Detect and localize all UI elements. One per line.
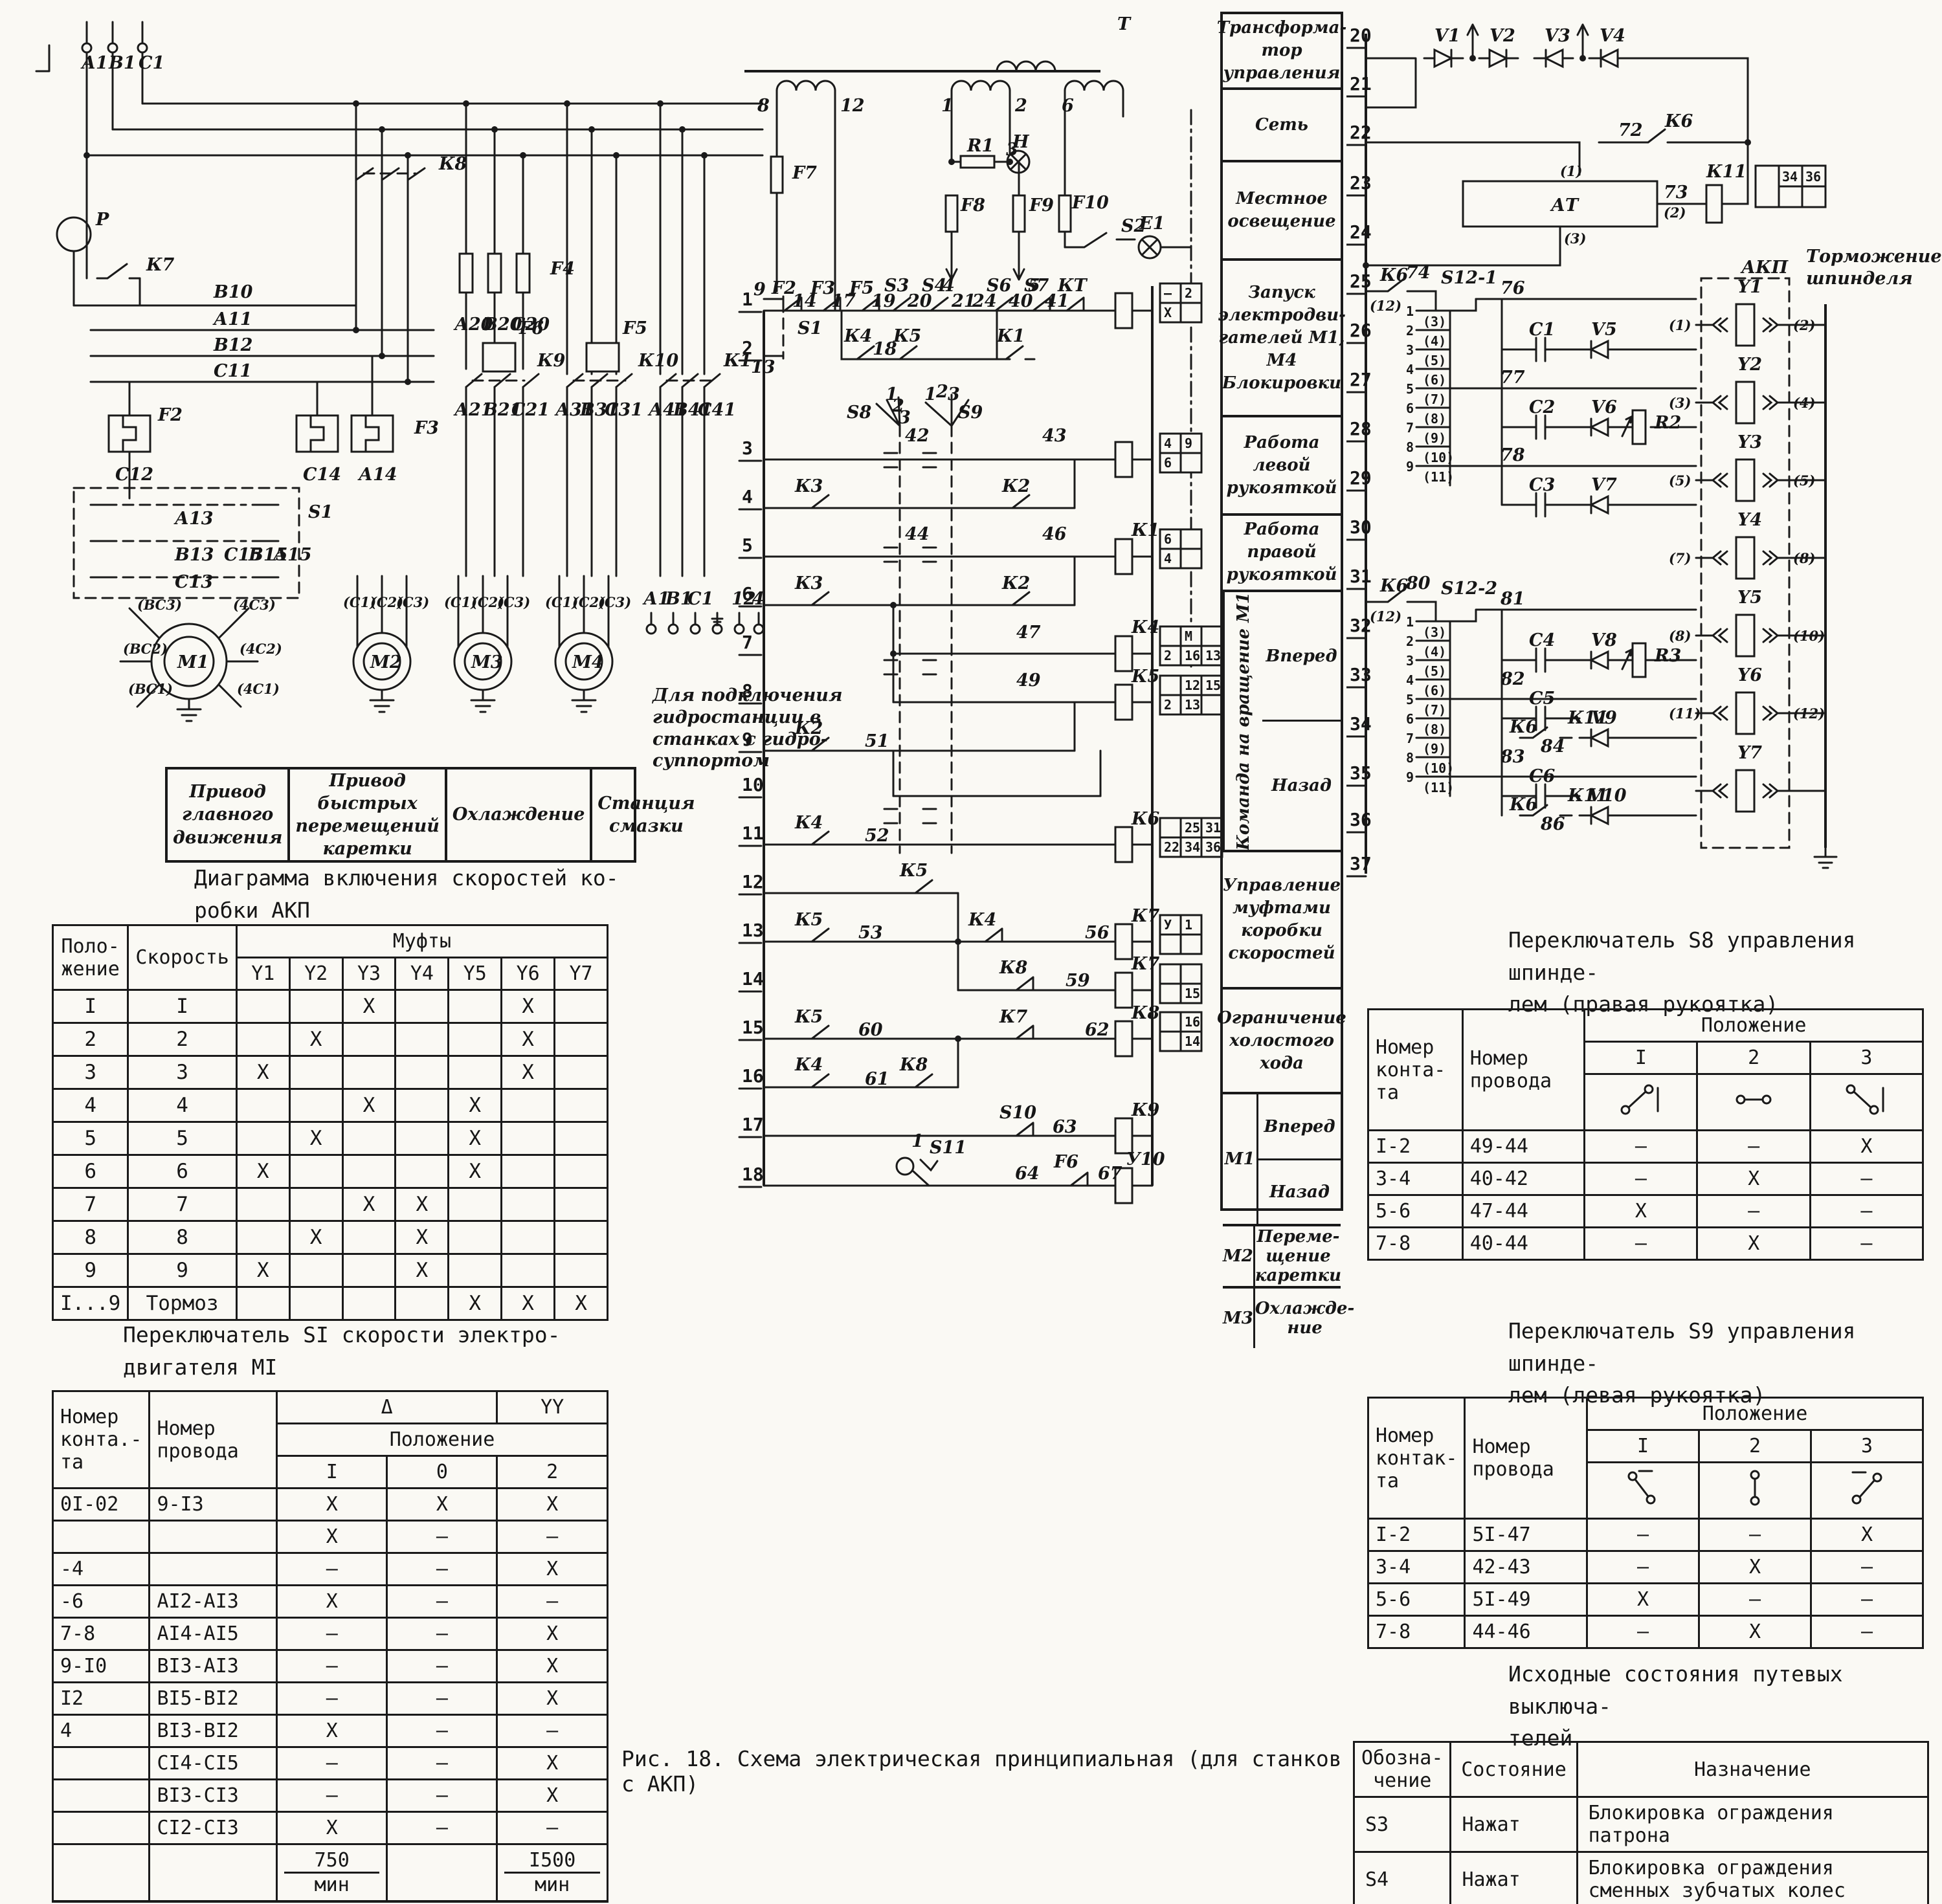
value-cell: – [497, 1521, 608, 1553]
limit-switch-row: S3НажатБлокировка ограждения патрона [1354, 1797, 1928, 1852]
s9-col-wire: Номер провода [1465, 1398, 1587, 1519]
schematic-label: 36 [1805, 169, 1821, 184]
clutch-control-schematic: 3436 1(3)2(4)3(5)4(6)5(7)6(8)7(9)8(10)9(… [1346, 6, 1929, 913]
s8-symbol-3 [1810, 1074, 1923, 1131]
fn-start-motors: Запуск электродви-гателей М1, М4 Блокиро… [1223, 261, 1341, 417]
clutch-mark-cell: X [342, 1089, 396, 1122]
schematic-label: V2 [1490, 26, 1515, 46]
position-cell: 5 [53, 1122, 128, 1155]
clutch-header: Y5 [449, 958, 502, 990]
schematic-label: К11 [1706, 162, 1747, 182]
schematic-label: 29 [1350, 467, 1372, 489]
schematic-label: Y5 [1737, 588, 1762, 608]
clutch-mark-cell [555, 1221, 608, 1254]
fn-right-handle: Работа правой рукояткой [1223, 516, 1341, 592]
schematic-label: 3 [742, 437, 753, 459]
wire-cell: 5I-49 [1465, 1584, 1587, 1616]
value-cell: X [497, 1650, 608, 1683]
value-cell: – [1811, 1551, 1923, 1584]
schematic-label: К5 [794, 1007, 823, 1027]
value-cell: X [497, 1683, 608, 1715]
speed-cell: 7 [128, 1188, 237, 1221]
schematic-label: К7 [999, 1007, 1028, 1027]
value-cell: – [387, 1586, 497, 1618]
schematic-label: 72 [1618, 120, 1643, 140]
clutch-mark-cell [449, 990, 502, 1023]
contact-cell: 7-8 [1368, 1616, 1465, 1648]
clutch-mark-cell [342, 1221, 396, 1254]
box-rapid-traverse: Привод быстрых перемещений каретки [290, 769, 447, 860]
clutch-mark-cell: X [555, 1287, 608, 1320]
s1-col-yy: YY [497, 1391, 608, 1424]
value-cell: X [497, 1780, 608, 1812]
clutch-mark-cell [236, 1089, 289, 1122]
value-cell: – [497, 1586, 608, 1618]
schematic-label: К6 [1509, 795, 1538, 815]
schematic-label: V1 [1434, 26, 1460, 46]
schematic-label: 52 [865, 826, 889, 846]
schematic-label: К6 [1509, 717, 1538, 737]
wire-cell: СI4-СI5 [150, 1747, 277, 1780]
schematic-label: С1 [687, 589, 713, 609]
speed-table-row: I...9ТормозXXX [53, 1287, 608, 1320]
schematic-label: F2 [157, 405, 183, 425]
wire-cell: 5I-47 [1465, 1519, 1587, 1551]
schematic-label: 5 [1406, 692, 1414, 707]
schematic-label: 13 [1185, 697, 1200, 713]
s9-switch-table: Номер контак- та Номер провода Положение… [1367, 1397, 1924, 1649]
clutch-mark-cell [449, 1023, 502, 1056]
schematic-label: 16 [1185, 648, 1200, 663]
value-cell: X [1699, 1551, 1811, 1584]
value-cell: – [387, 1747, 497, 1780]
sign-cell: S4 [1354, 1852, 1451, 1904]
speed-table-row: 66XX [53, 1155, 608, 1188]
schematic-label: К8 [899, 1055, 928, 1075]
position-cell: 9 [53, 1254, 128, 1287]
clutch-mark-cell [289, 1254, 342, 1287]
schematic-label: (10) [1423, 760, 1454, 776]
schematic-label: В1 [108, 53, 136, 73]
schematic-label: 9 [1185, 436, 1192, 451]
schematic-label: 34 [1782, 169, 1798, 184]
schematic-label: 76 [1501, 278, 1525, 298]
schematic-label: К7 [146, 255, 175, 275]
schematic-label: R2 [1654, 413, 1681, 433]
schematic-label: V5 [1591, 320, 1617, 340]
schematic-label: (10) [1793, 628, 1825, 644]
clutch-mark-cell: X [502, 990, 555, 1023]
schematic-label: 6 [1406, 401, 1414, 416]
value-cell: – [276, 1618, 386, 1650]
schematic-label: 4 [1406, 362, 1414, 377]
position-cell: 6 [53, 1155, 128, 1188]
value-cell: – [1699, 1519, 1811, 1551]
col-speed: Скорость [128, 925, 237, 990]
contact-cell [53, 1812, 150, 1844]
value-cell: X [497, 1553, 608, 1586]
clutch-mark-cell [289, 1155, 342, 1188]
value-cell: X [1587, 1584, 1699, 1616]
schematic-label: 37 [1350, 853, 1372, 874]
schematic-label: (1) [1669, 317, 1691, 333]
schematic-label: С1 [139, 53, 164, 73]
s8-pos-1: I [1585, 1042, 1697, 1074]
value-cell: X [276, 1586, 386, 1618]
schematic-label: С14 [303, 465, 341, 485]
schematic-label: 21 [1350, 73, 1372, 94]
position-cell: I...9 [53, 1287, 128, 1320]
power-circuit-schematic: А1В1С1РВ10К7К8F4А20В20С20А11В12С11F2С12С… [19, 6, 764, 764]
schematic-label: 5 [742, 535, 753, 556]
speed-cell: 6 [128, 1155, 237, 1188]
wire-cell: 40-44 [1462, 1228, 1585, 1260]
schematic-label: 22 [1164, 839, 1179, 855]
value-cell: – [1811, 1616, 1923, 1648]
s8-switch-table: Номер конта- та Номер провода Положение … [1367, 1008, 1924, 1261]
schematic-label: (4С2) [240, 641, 282, 657]
schematic-label: 34 [1185, 839, 1200, 855]
clutch-mark-cell [289, 1056, 342, 1089]
schematic-label: К1 [1131, 520, 1159, 540]
schematic-label: 2 [1406, 634, 1414, 649]
speed-table-row: 44XX [53, 1089, 608, 1122]
fn-idle-limit: Ограничение холостого хода [1223, 990, 1341, 1094]
schematic-label: 5 [1406, 381, 1414, 397]
speed-cell: 5 [128, 1122, 237, 1155]
speed-diagram-title: Диаграмма включения скоростей ко- робки … [194, 862, 660, 926]
schematic-label: 4 [1406, 672, 1414, 688]
wire-cell: ВI3-АI3 [150, 1650, 277, 1683]
schematic-label: F6 [519, 318, 544, 338]
schematic-label: (6) [1423, 372, 1446, 388]
clutch-mark-cell [555, 990, 608, 1023]
clutch-mark-cell [396, 1089, 449, 1122]
schematic-label: К4 [968, 910, 996, 930]
schematic-label: 8 [1406, 750, 1414, 766]
schematic-label: В12 [213, 335, 252, 355]
value-cell: – [1699, 1584, 1811, 1616]
clutch-header: Y1 [236, 958, 289, 990]
schematic-label: К5 [893, 326, 921, 346]
schematic-label: F10 [1071, 193, 1109, 213]
speed-cell: 4 [128, 1089, 237, 1122]
value-cell: – [387, 1553, 497, 1586]
schematic-label: 6 [1062, 96, 1074, 116]
value-cell: X [1697, 1163, 1810, 1195]
value-cell: X [387, 1489, 497, 1521]
value-cell: – [276, 1650, 386, 1683]
clutch-mark-cell [342, 1287, 396, 1320]
clutch-mark-cell [236, 1287, 289, 1320]
schematic-label: С6 [1529, 766, 1555, 786]
contact-cell: I2 [53, 1683, 150, 1715]
schematic-label: С5 [1529, 689, 1555, 709]
box-main-drive: Привод главного движения [168, 769, 290, 860]
lim-col-purpose: Назначение [1577, 1742, 1928, 1797]
schematic-label: С11 [214, 361, 252, 381]
contact-cell: 3-4 [1368, 1551, 1465, 1584]
schematic-label: К3 [794, 573, 823, 593]
clutch-mark-cell: X [449, 1287, 502, 1320]
limit-switches-title: Исходные состояния путевых выключа- теле… [1508, 1658, 1936, 1755]
switch-table-row: 3-442-43–X– [1368, 1551, 1923, 1584]
schematic-label: 25 [1185, 820, 1200, 836]
speed-table-row: 77XX [53, 1188, 608, 1221]
speed-table-row: 88XX [53, 1221, 608, 1254]
schematic-label: 13 [1205, 648, 1221, 663]
value-cell: X [1699, 1616, 1811, 1648]
schematic-label: (9) [1423, 741, 1446, 757]
fn-m2-carriage: Переме-щение каретки [1255, 1226, 1341, 1286]
schematic-label: 1 [1406, 614, 1414, 630]
schematic-label: 26 [1350, 320, 1372, 341]
purpose-cell: Блокировка ограждения сменных зубчатых к… [1577, 1852, 1928, 1904]
schematic-label: 15 [742, 1017, 764, 1038]
schematic-label: 12 [1185, 678, 1200, 693]
wire-cell: 47-44 [1462, 1195, 1585, 1228]
fn-m1-group: М1 Вперед Назад [1223, 1094, 1341, 1226]
position-cell: 4 [53, 1089, 128, 1122]
wire-cell: ВI3-ВI2 [150, 1715, 277, 1747]
contact-cell [53, 1521, 150, 1553]
schematic-label: В10 [213, 282, 253, 302]
clutch-header: Y6 [502, 958, 555, 990]
speed-table: Поло- жение Скорость Муфты Y1Y2Y3Y4Y5Y6Y… [52, 924, 608, 1321]
s1-table-row: X–– [53, 1521, 608, 1553]
wire-cell [150, 1553, 277, 1586]
schematic-label: 1 [742, 289, 753, 310]
value-cell: X [497, 1489, 608, 1521]
schematic-label: (1) [1560, 163, 1582, 179]
purpose-cell: Блокировка ограждения патрона [1577, 1797, 1928, 1852]
schematic-label: 7 [742, 632, 753, 653]
schematic-label: (5) [1793, 472, 1815, 489]
s9-symbol-1 [1587, 1463, 1699, 1519]
schematic-label: 16 [1185, 1014, 1200, 1030]
speed-cell: 3 [128, 1056, 237, 1089]
s1-table-row: -6АI2-АI3X–– [53, 1586, 608, 1618]
clutch-mark-cell: X [289, 1221, 342, 1254]
lim-col-sign: Обозна- чение [1354, 1742, 1451, 1797]
schematic-label: АТ [1550, 195, 1579, 216]
schematic-label: 80 [1405, 573, 1431, 593]
schematic-label: Т [1117, 14, 1132, 34]
schematic-label: (5) [1423, 353, 1446, 368]
schematic-label: С12 [115, 465, 153, 485]
schematic-label: S12-1 [1441, 268, 1497, 288]
value-cell: – [1697, 1195, 1810, 1228]
schematic-label: (3) [1564, 230, 1586, 247]
schematic-label: М3 [471, 652, 503, 672]
schematic-label: – [1164, 285, 1172, 301]
s9-pos-2: 2 [1699, 1430, 1811, 1463]
schematic-label: 15 [1185, 986, 1200, 1001]
schematic-label: 17 [742, 1114, 764, 1135]
value-cell: – [387, 1650, 497, 1683]
schematic-label: R3 [1654, 646, 1681, 666]
clutch-mark-cell [555, 1254, 608, 1287]
schematic-label: 25 [1350, 271, 1372, 292]
schematic-label: 1 [924, 384, 937, 404]
contact-cell: 5-6 [1368, 1195, 1463, 1228]
speed-cell: Тормоз [128, 1287, 237, 1320]
schematic-label: К2 [1001, 573, 1030, 593]
schematic-label: 31 [1205, 820, 1221, 836]
switch-table-row: 7-844-46–X– [1368, 1616, 1923, 1648]
clutch-mark-cell [236, 990, 289, 1023]
clutch-mark-cell [396, 1056, 449, 1089]
s1-table-row: -4––X [53, 1553, 608, 1586]
schematic-label: V4 [1600, 26, 1625, 46]
schematic-label: F4 [550, 259, 575, 279]
schematic-label: 33 [1350, 664, 1372, 685]
s1-pos-0: 0 [387, 1456, 497, 1489]
value-cell: – [387, 1812, 497, 1844]
speed-table-row: 55XX [53, 1122, 608, 1155]
schematic-label: 2 [935, 382, 948, 402]
switch-table-row: I-249-44––X [1368, 1131, 1923, 1163]
wire-cell: 49-44 [1462, 1131, 1585, 1163]
schematic-label: К4 [1131, 617, 1159, 637]
s1-table-caption: Переключатель SI скорости электро- двига… [123, 1319, 576, 1383]
value-cell: – [1810, 1228, 1923, 1260]
clutch-mark-cell: X [342, 990, 396, 1023]
speed-cell: 8 [128, 1221, 237, 1254]
schematic-label: К2 [1001, 476, 1030, 496]
s1-rpm-yy: I500мин [504, 1849, 600, 1896]
schematic-label: 24 [1350, 221, 1372, 243]
wire-cell: АI4-АI5 [150, 1618, 277, 1650]
state-cell: Нажат [1451, 1797, 1577, 1852]
schematic-label: (8) [1793, 550, 1815, 566]
schematic-label: (11) [1423, 780, 1454, 795]
s1-table-row: 7-8АI4-АI5––X [53, 1618, 608, 1650]
schematic-label: 74 [1406, 263, 1431, 283]
value-cell: – [387, 1780, 497, 1812]
value-cell: – [276, 1747, 386, 1780]
clutch-mark-cell: X [502, 1056, 555, 1089]
contact-cell: -4 [53, 1553, 150, 1586]
schematic-label: М2 [370, 652, 402, 672]
clutch-mark-cell [555, 1089, 608, 1122]
schematic-label: (8) [1423, 411, 1446, 426]
schematic-label: К10 [638, 351, 678, 371]
clutch-mark-cell [396, 1122, 449, 1155]
schematic-label: (7) [1669, 550, 1691, 566]
schematic-label: К9 [1131, 1100, 1160, 1120]
schematic-label: 44 [905, 524, 930, 544]
value-cell: – [387, 1715, 497, 1747]
schematic-label: 2 [1185, 285, 1192, 301]
clutch-mark-cell [502, 1122, 555, 1155]
schematic-label: 12 [742, 871, 764, 892]
schematic-label: 6 [742, 583, 753, 604]
schematic-label: (С3) [598, 594, 631, 610]
s1-col-position: Положение [276, 1424, 607, 1456]
value-cell: – [387, 1618, 497, 1650]
clutch-mark-cell [502, 1155, 555, 1188]
clutch-mark-cell [236, 1023, 289, 1056]
contact-cell [53, 1780, 150, 1812]
schematic-label: 63 [1053, 1117, 1077, 1137]
fn-command-back: Назад [1262, 722, 1341, 850]
wire-cell: 44-46 [1465, 1616, 1587, 1648]
schematic-label: К9 [537, 351, 566, 371]
schematic-label: К5 [794, 910, 823, 930]
schematic-label: 6 [1164, 531, 1172, 547]
clutch-mark-cell: X [449, 1155, 502, 1188]
speed-cell: 2 [128, 1023, 237, 1056]
schematic-label: V8 [1591, 630, 1617, 650]
schematic-label: 28 [1350, 418, 1372, 439]
wire-cell [150, 1521, 277, 1553]
figure-caption: Рис. 18. Схема электрическая принципиаль… [621, 1746, 1359, 1797]
schematic-label: 3 [898, 408, 911, 428]
value-cell: – [1587, 1616, 1699, 1648]
schematic-label: 2 [1164, 697, 1172, 713]
schematic-label: 8 [742, 680, 753, 702]
schematic-label: 13 [742, 920, 764, 941]
schematic-label: 2 [1406, 323, 1414, 338]
s9-pos-1: I [1587, 1430, 1699, 1463]
clutch-mark-cell [449, 1221, 502, 1254]
schematic-label: С2 [1529, 397, 1555, 417]
clutch-mark-cell [555, 1056, 608, 1089]
clutch-mark-cell: X [236, 1254, 289, 1287]
value-cell: – [1587, 1519, 1699, 1551]
clutch-mark-cell [396, 1155, 449, 1188]
schematic-label: 14 [742, 968, 764, 990]
clutch-mark-cell [555, 1155, 608, 1188]
s1-table-row: СI2-СI3X–– [53, 1812, 608, 1844]
schematic-label: 59 [1066, 971, 1090, 991]
schematic-label: S12-2 [1441, 579, 1497, 599]
fn-local-light: Местное освещение [1223, 162, 1341, 261]
value-cell: X [276, 1812, 386, 1844]
schematic-label: А14 [357, 465, 397, 485]
s1-footer-row: 750мин I500мин [53, 1844, 608, 1902]
schematic-label: 3 [1406, 342, 1414, 358]
fn-command-forward: Вперед [1262, 592, 1341, 722]
fn-m2-group: М2 Переме-щение каретки [1223, 1226, 1341, 1289]
s8-symbol-2 [1697, 1074, 1810, 1131]
schematic-label: С1 [1529, 320, 1555, 340]
clutch-mark-cell: X [502, 1023, 555, 1056]
schematic-label: 22 [1350, 122, 1372, 143]
s8-symbol-1 [1585, 1074, 1697, 1131]
fn-m1-forward: Вперед [1258, 1094, 1341, 1160]
schematic-label: 36 [1205, 839, 1221, 855]
schematic-label: (8) [1423, 722, 1446, 737]
fn-m3: М3 [1223, 1289, 1255, 1348]
value-cell: X [497, 1747, 608, 1780]
spindle-brake-label: Торможение шпинделя [1806, 246, 1936, 290]
schematic-label: (6) [1423, 683, 1446, 698]
schematic-label: (3) [1423, 314, 1446, 329]
schematic-label: К7 [1131, 954, 1160, 974]
schematic-label: 7 [1406, 420, 1414, 436]
s9-symbol-2 [1699, 1463, 1811, 1519]
schematic-label: Y2 [1737, 355, 1762, 375]
clutch-mark-cell [236, 1221, 289, 1254]
clutch-mark-cell [289, 1287, 342, 1320]
schematic-label: V6 [1591, 397, 1617, 417]
contact-cell: 7-8 [1368, 1228, 1463, 1260]
fn-m2: М2 [1223, 1226, 1255, 1286]
schematic-label: К3 [794, 476, 823, 496]
value-cell: – [387, 1521, 497, 1553]
